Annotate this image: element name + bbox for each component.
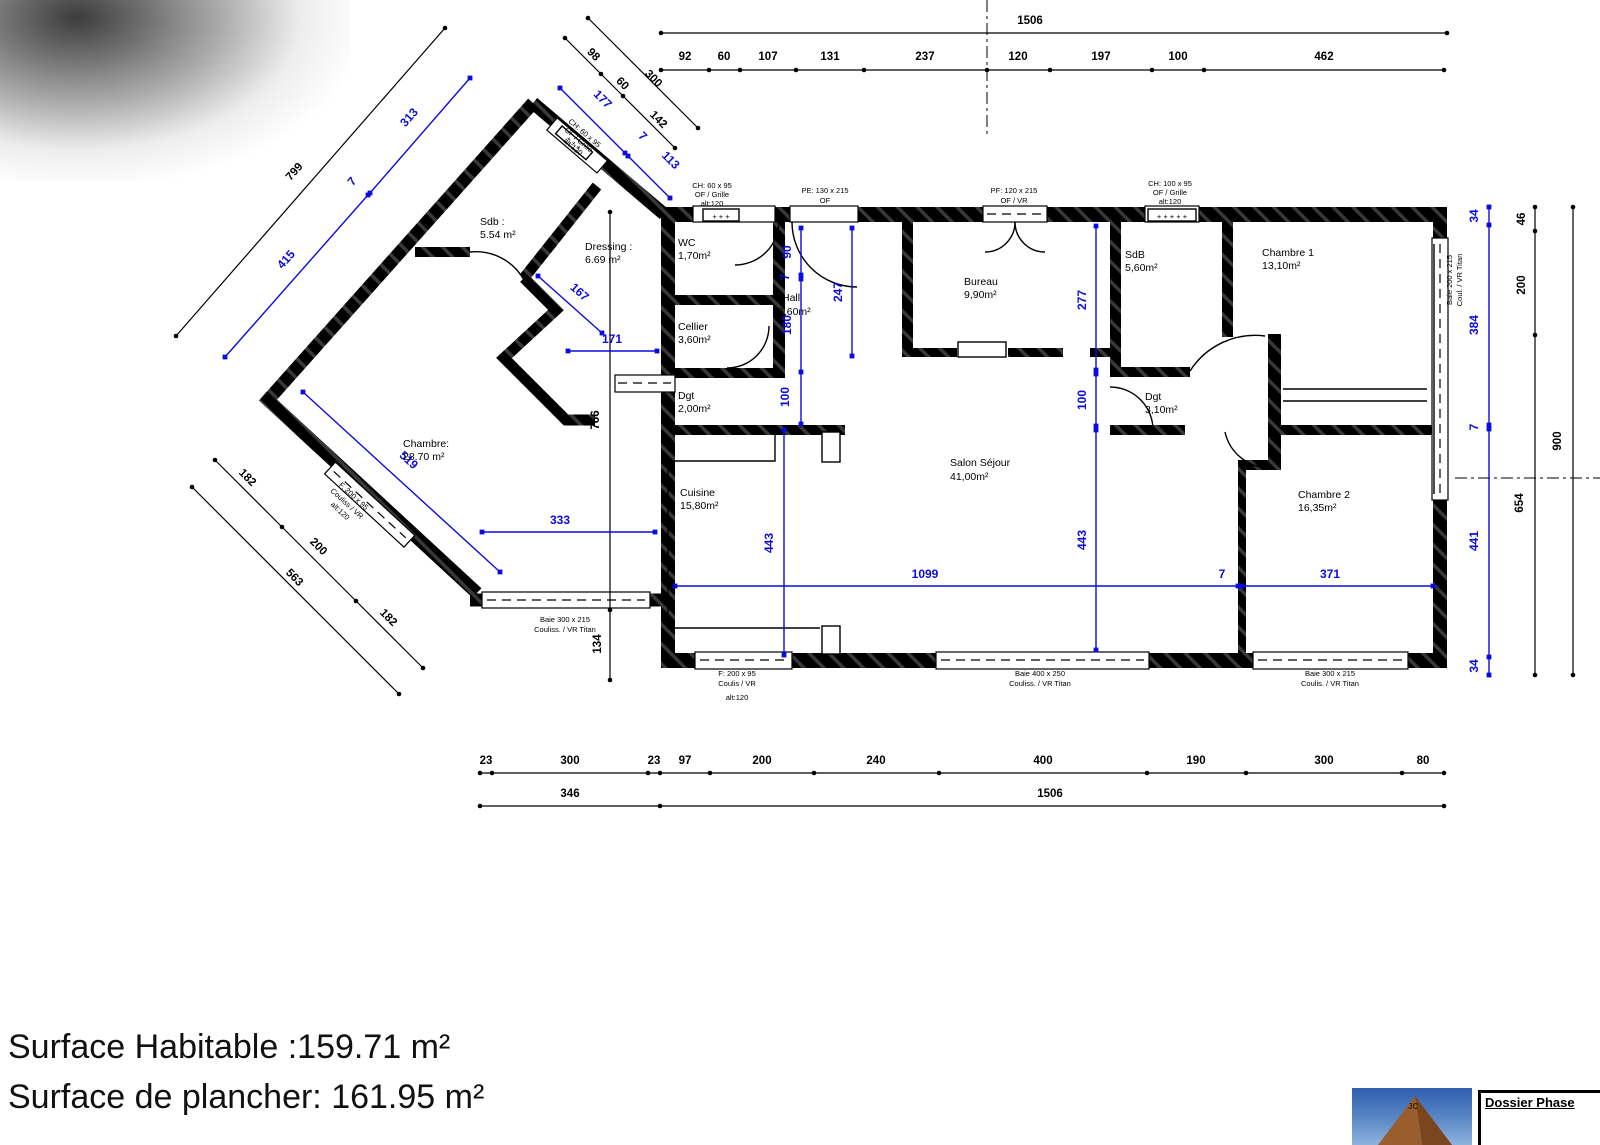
dim-right-200: 200 [1516, 275, 1528, 294]
dim-lower-182a: 182 [236, 467, 258, 489]
dim-top-seg-1: 60 [718, 51, 731, 63]
wc-door-arc [735, 221, 779, 265]
room-wc-area: 1,70m² [678, 250, 711, 262]
dim-bottom1-8: 300 [1314, 755, 1333, 767]
dim-blue-415: 415 [274, 247, 298, 272]
label-ch100-2: OF / Grille [1153, 188, 1187, 197]
label-baie200-2: Coul. / VR Titan [1455, 254, 1464, 307]
floor-plan-page: + + + + + + + + [0, 0, 1600, 1145]
dim-bottom1-0: 23 [480, 755, 493, 767]
dim-diag-799: 799 [284, 161, 306, 183]
dim-mid-443: 443 [1075, 530, 1089, 550]
dim-bottom2-346: 346 [560, 788, 579, 800]
dim-top-total: 1506 [1017, 15, 1043, 27]
dim-inner-7: 7 [1219, 567, 1226, 581]
room-sdb-name: SdB [1125, 249, 1145, 261]
label-wc-ch60-3: alt:120 [701, 199, 724, 208]
dim-apex-300: 300 [642, 68, 664, 90]
label-f200-1: F: 200 x 95 [718, 669, 756, 678]
room-dgt2-area: 3,10m² [1145, 404, 1178, 416]
ch100-window: + + + + + [1145, 206, 1199, 222]
surface-plancher-text: Surface de plancher: 161.95 m² [8, 1078, 484, 1117]
dim-top-seg-5: 120 [1008, 51, 1027, 63]
dim-bottom2-1506: 1506 [1037, 788, 1063, 800]
label-pe-2: OF [820, 196, 831, 205]
baie400-window [936, 652, 1149, 669]
room-chambre2-name: Chambre 2 [1298, 489, 1350, 501]
label-wing-baie300-1: Baie 300 x 215 [540, 615, 590, 624]
room-chambre-wing-name: Chambre: [403, 438, 449, 450]
dim-bottom1-3: 97 [679, 755, 692, 767]
label-f200-2: Coulis / VR [718, 679, 756, 688]
dim-wing-171: 171 [602, 332, 622, 346]
photo-thumbnail: JC [1352, 1088, 1472, 1145]
room-salon-area: 41,00m² [950, 471, 989, 483]
label-pf-1: PF: 120 x 215 [991, 186, 1038, 195]
dim-rblue-7: 7 [1467, 423, 1481, 430]
dim-inner-1099: 1099 [912, 567, 939, 581]
dim-bottom1-4: 200 [752, 755, 771, 767]
dim-left-766: 766 [590, 410, 602, 429]
f200-window [695, 652, 792, 669]
dim-top-seg-6: 197 [1091, 51, 1110, 63]
blue-dimensions: 415 7 313 177 7 113 519 167 171 333 90 7… [225, 78, 1489, 675]
room-cuisine-name: Cuisine [680, 487, 715, 499]
room-dgt1-area: 2,00m² [678, 403, 711, 415]
wing-baie300-window [482, 592, 650, 608]
chambre1-door-arc [1190, 335, 1265, 371]
dim-apex-60: 60 [613, 75, 631, 93]
dim-hall-7: 7 [778, 273, 792, 280]
dim-top-seg-4: 237 [915, 51, 934, 63]
room-cellier-name: Cellier [678, 321, 708, 333]
dim-rblue-384: 384 [1467, 315, 1481, 335]
dim-mid-100: 100 [1075, 390, 1089, 410]
title-block-label: Dossier Phase [1485, 1095, 1575, 1110]
dim-bottom1-2: 23 [648, 755, 661, 767]
dim-inner-371: 371 [1320, 567, 1340, 581]
room-dgt1-name: Dgt [678, 390, 694, 402]
label-ch100-3: alt:120 [1159, 197, 1182, 206]
label-wc-ch60-1: CH: 60 x 95 [692, 181, 732, 190]
dim-blue-313: 313 [397, 105, 421, 130]
dim-wing-167: 167 [568, 280, 593, 304]
dim-kitchen-443: 443 [762, 533, 776, 553]
dim-blue-177: 177 [591, 87, 615, 111]
label-wing-baie300-2: Couliss. / VR Titan [534, 625, 596, 634]
dim-bottom1-1: 300 [560, 755, 579, 767]
surface-habitable-text: Surface Habitable :159.71 m² [8, 1028, 450, 1067]
salon-pillar-top [822, 432, 840, 462]
dim-hall-90: 90 [780, 245, 794, 259]
title-block: Dossier Phase [1478, 1090, 1600, 1145]
pf-door-left-arc [985, 222, 1015, 252]
room-labels: Sdb : 5.54 m² Dressing : 6.69 m² Chambre… [403, 216, 1350, 514]
dim-bottom1-5: 240 [866, 755, 885, 767]
label-pe-1: PE: 130 x 215 [801, 186, 848, 195]
room-dgt2-name: Dgt [1145, 391, 1161, 403]
dim-rblue-441: 441 [1467, 531, 1481, 551]
dim-blue-7b: 7 [636, 129, 651, 144]
sdb-wing-door-arc [470, 252, 524, 280]
label-ch100-1: CH: 100 x 95 [1148, 179, 1192, 188]
label-baie200-1: Baie 200 x 215 [1445, 255, 1454, 305]
room-bureau-area: 9,90m² [964, 289, 997, 301]
label-f200-3: alt:120 [726, 693, 749, 702]
room-cuisine-area: 15,80m² [680, 500, 719, 512]
room-chambre1-area: 13,10m² [1262, 260, 1301, 272]
wing-junction-opening [615, 375, 675, 392]
dim-apex-98: 98 [584, 46, 602, 64]
pf-window [983, 206, 1047, 222]
label-pf-2: OF / VR [1000, 196, 1028, 205]
room-chambre1-name: Chambre 1 [1262, 247, 1314, 259]
black-dimensions: 1506 92 60 107 131 237 120 197 100 462 7… [176, 15, 1573, 806]
label-baie400-2: Couliss. / VR Titan [1009, 679, 1071, 688]
room-sdb-wing-name: Sdb : [480, 216, 505, 228]
photo-overlay-text: JC [1408, 1102, 1418, 1111]
label-baie400-1: Baie 400 x 250 [1015, 669, 1065, 678]
room-chambre2-area: 16,35m² [1298, 502, 1337, 514]
room-hall-area: 6,60m² [778, 306, 811, 318]
room-dressing-area: 6.69 m² [585, 254, 621, 266]
interior-walls [675, 222, 1433, 653]
room-chambre-wing-area: 28.70 m² [403, 451, 445, 463]
room-dressing-name: Dressing : [585, 241, 632, 253]
dim-wing-333: 333 [550, 513, 570, 527]
room-sdb-area: 5,60m² [1125, 262, 1158, 274]
floor-plan-svg: + + + + + + + + [0, 0, 1600, 1145]
dim-right-46: 46 [1516, 213, 1528, 226]
entry-door-arc [792, 222, 857, 287]
label-baie300-2: Coulis. / VR Titan [1301, 679, 1359, 688]
label-baie300-1: Baie 300 x 215 [1305, 669, 1355, 678]
room-salon-name: Salon Séjour [950, 457, 1011, 469]
dim-lower-563: 563 [283, 567, 305, 589]
cellier-door-arc [727, 326, 769, 368]
dim-rblue-34b: 34 [1467, 659, 1481, 673]
wc-window: + + + [693, 206, 775, 222]
pf-door-right-arc [1015, 222, 1045, 252]
dim-right-900: 900 [1552, 431, 1564, 450]
dim-blue-113: 113 [659, 148, 683, 172]
dim-bottom1-6: 400 [1033, 755, 1052, 767]
dim-hall-100: 100 [778, 387, 792, 407]
dim-blue-7a: 7 [345, 174, 360, 188]
entry-door-opening [790, 206, 858, 222]
dim-top-seg-7: 100 [1168, 51, 1187, 63]
salon-pillar-bottom [822, 626, 840, 654]
dim-top-seg-0: 92 [679, 51, 692, 63]
dim-top-seg-3: 131 [820, 51, 840, 63]
room-wc-name: WC [678, 237, 696, 249]
dim-right-654: 654 [1514, 493, 1526, 513]
room-hall-name: Hall [782, 292, 800, 304]
room-sdb-wing-area: 5.54 m² [480, 229, 516, 241]
dim-top-seg-8: 462 [1314, 51, 1333, 63]
dim-mid-277: 277 [1075, 290, 1089, 310]
dim-apex-142: 142 [647, 109, 669, 131]
room-bureau-name: Bureau [964, 276, 998, 288]
opening-labels: CH: 60 x 95 OF / Grille alt:120 PE: 130 … [322, 117, 1464, 702]
dim-hall-247: 247 [831, 282, 845, 302]
dim-rblue-34a: 34 [1467, 209, 1481, 223]
bureau-counter [958, 342, 1006, 357]
baie300-window [1253, 652, 1408, 669]
dim-left-134: 134 [592, 634, 604, 654]
dim-bottom1-9: 80 [1417, 755, 1430, 767]
room-cellier-area: 3,60m² [678, 334, 711, 346]
wc-window-ticks: + + + [712, 212, 730, 221]
label-wc-ch60-2: OF / Grille [695, 190, 729, 199]
dim-bottom1-7: 190 [1186, 755, 1205, 767]
ch100-window-ticks: + + + + + [1157, 212, 1188, 221]
dim-top-seg-2: 107 [758, 51, 777, 63]
